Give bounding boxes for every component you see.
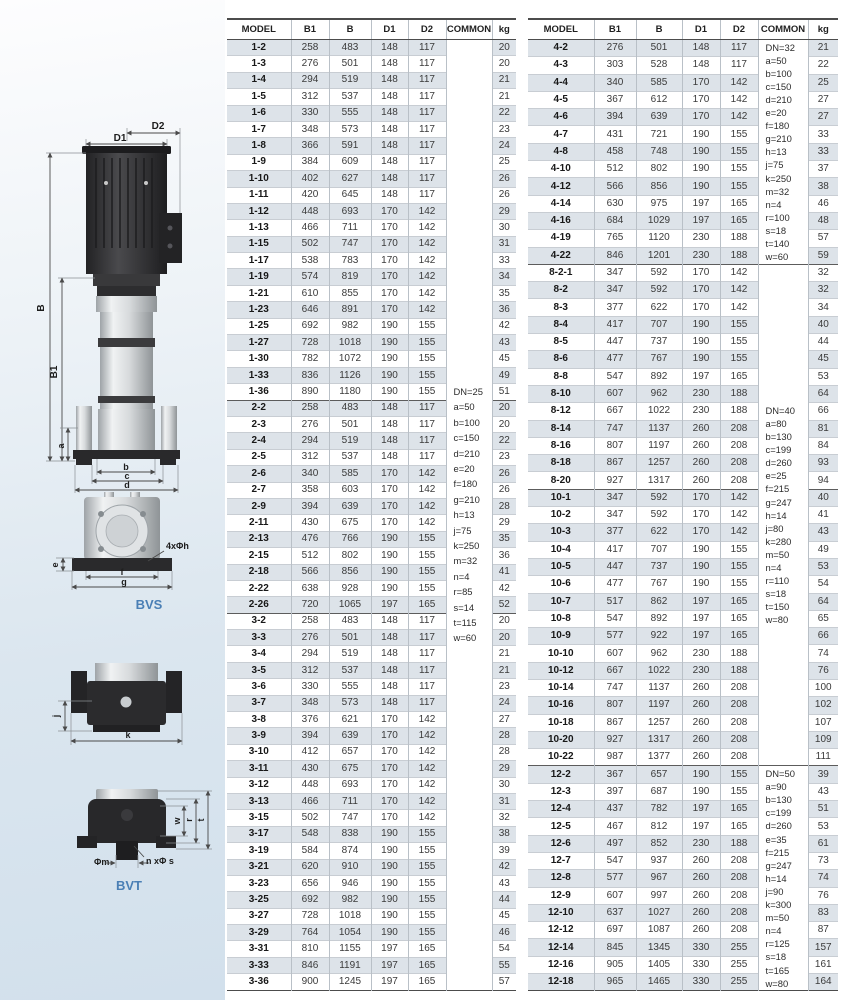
value-cell: 197 — [371, 597, 408, 613]
model-cell: 2-7 — [227, 482, 291, 498]
bvs-oval-flange-view: j k — [51, 663, 182, 745]
value-cell: 48 — [808, 212, 838, 229]
model-cell: 3-21 — [227, 859, 291, 875]
value-cell: 190 — [371, 318, 408, 334]
value-cell: 728 — [291, 335, 329, 351]
value-cell: 35 — [492, 285, 516, 301]
terminal-bolt — [168, 226, 173, 231]
value-cell: 73 — [808, 852, 838, 869]
value-cell: 117 — [720, 40, 758, 57]
value-cell: 26 — [492, 482, 516, 498]
value-cell: 29 — [492, 203, 516, 219]
value-cell: 43 — [808, 783, 838, 800]
value-cell: 394 — [594, 109, 636, 126]
value-cell: 142 — [408, 285, 446, 301]
value-cell: 737 — [636, 558, 682, 575]
value-cell: 142 — [408, 236, 446, 252]
value-cell: 1126 — [329, 367, 371, 383]
model-cell: 8-18 — [528, 455, 594, 472]
value-cell: 645 — [329, 187, 371, 203]
value-cell: 155 — [408, 875, 446, 891]
value-cell: 294 — [291, 72, 329, 88]
value-cell: 53 — [808, 368, 838, 385]
value-cell: 142 — [408, 220, 446, 236]
value-cell: 155 — [408, 908, 446, 924]
value-cell: 74 — [808, 645, 838, 662]
model-cell: 3-9 — [227, 728, 291, 744]
model-cell: 2-6 — [227, 466, 291, 482]
dim-label-a: a — [56, 443, 66, 449]
value-cell: 148 — [371, 433, 408, 449]
value-cell: 502 — [291, 236, 329, 252]
value-cell: 312 — [291, 449, 329, 465]
value-cell: 657 — [329, 744, 371, 760]
value-cell: 767 — [636, 351, 682, 368]
value-cell: 675 — [329, 515, 371, 531]
value-cell: 430 — [291, 515, 329, 531]
value-cell: 260 — [682, 887, 720, 904]
model-cell: 1-23 — [227, 302, 291, 318]
value-cell: 767 — [636, 576, 682, 593]
model-cell: 10-16 — [528, 697, 594, 714]
value-cell: 83 — [808, 904, 838, 921]
model-cell: 3-2 — [227, 613, 291, 629]
value-cell: 927 — [594, 472, 636, 489]
value-cell: 170 — [371, 285, 408, 301]
value-cell: 190 — [371, 859, 408, 875]
dim-label-b1: B1 — [49, 365, 60, 378]
value-cell: 437 — [594, 801, 636, 818]
value-cell: 987 — [594, 749, 636, 766]
value-cell: 230 — [682, 403, 720, 420]
value-cell: 117 — [408, 433, 446, 449]
model-cell: 1-11 — [227, 187, 291, 203]
value-cell: 922 — [636, 628, 682, 645]
model-cell: 10-3 — [528, 524, 594, 541]
value-cell: 170 — [371, 253, 408, 269]
model-cell: 10-4 — [528, 541, 594, 558]
value-cell: 466 — [291, 220, 329, 236]
spec-table-right: MODELB1BD1D2COMMONkg 4-2276501148117DN=3… — [528, 18, 838, 991]
value-cell: 412 — [291, 744, 329, 760]
column-band — [98, 396, 155, 403]
value-cell: 348 — [291, 695, 329, 711]
value-cell: 164 — [808, 974, 838, 991]
value-cell: 707 — [636, 316, 682, 333]
value-cell: 417 — [594, 541, 636, 558]
value-cell: 54 — [492, 941, 516, 957]
value-cell: 20 — [492, 630, 516, 646]
value-cell: 66 — [808, 628, 838, 645]
value-cell: 538 — [291, 253, 329, 269]
bvt-series-label: BVT — [116, 878, 142, 893]
value-cell: 94 — [808, 472, 838, 489]
value-cell: 905 — [594, 956, 636, 973]
value-cell: 148 — [682, 40, 720, 57]
value-cell: 394 — [291, 498, 329, 514]
value-cell: 845 — [594, 939, 636, 956]
value-cell: 607 — [594, 645, 636, 662]
value-cell: 142 — [408, 712, 446, 728]
value-cell: 330 — [682, 974, 720, 991]
value-cell: 84 — [808, 437, 838, 454]
value-cell: 900 — [291, 974, 329, 990]
value-cell: 501 — [329, 416, 371, 432]
model-cell: 10-6 — [528, 576, 594, 593]
model-cell: 2-11 — [227, 515, 291, 531]
value-cell: 294 — [291, 433, 329, 449]
dim-label-phi-m: Φm — [94, 857, 109, 867]
value-cell: 517 — [594, 593, 636, 610]
header-row: MODELB1BD1D2COMMONkg — [227, 19, 516, 40]
value-cell: 330 — [682, 956, 720, 973]
model-cell: 10-22 — [528, 749, 594, 766]
value-cell: 51 — [492, 384, 516, 400]
model-cell: 12-2 — [528, 766, 594, 783]
value-cell: 621 — [329, 712, 371, 728]
value-cell: 107 — [808, 714, 838, 731]
value-cell: 142 — [408, 466, 446, 482]
model-cell: 10-18 — [528, 714, 594, 731]
value-cell: 483 — [329, 40, 371, 56]
value-cell: 892 — [636, 368, 682, 385]
value-cell: 117 — [720, 57, 758, 74]
value-cell: 20 — [492, 40, 516, 56]
value-cell: 64 — [808, 593, 838, 610]
model-cell: 8-20 — [528, 472, 594, 489]
value-cell: 27 — [808, 109, 838, 126]
value-cell: 190 — [682, 143, 720, 160]
value-cell: 260 — [682, 455, 720, 472]
value-cell: 657 — [636, 766, 682, 783]
value-cell: 501 — [636, 40, 682, 57]
model-cell: 10-9 — [528, 628, 594, 645]
value-cell: 165 — [720, 593, 758, 610]
column-header-kg: kg — [808, 19, 838, 40]
value-cell: 188 — [720, 835, 758, 852]
value-cell: 1317 — [636, 472, 682, 489]
value-cell: 142 — [408, 253, 446, 269]
model-cell: 3-19 — [227, 843, 291, 859]
value-cell: 26 — [492, 187, 516, 203]
value-cell: 802 — [329, 548, 371, 564]
value-cell: 547 — [594, 368, 636, 385]
value-cell: 142 — [408, 810, 446, 826]
value-cell: 807 — [594, 437, 636, 454]
value-cell: 197 — [371, 957, 408, 973]
value-cell: 377 — [594, 524, 636, 541]
value-cell: 846 — [594, 247, 636, 264]
value-cell: 639 — [636, 109, 682, 126]
value-cell: 155 — [720, 558, 758, 575]
value-cell: 584 — [291, 843, 329, 859]
value-cell: 170 — [371, 302, 408, 318]
value-cell: 170 — [371, 515, 408, 531]
value-cell: 117 — [408, 646, 446, 662]
value-cell: 117 — [408, 89, 446, 105]
value-cell: 33 — [808, 143, 838, 160]
value-cell: 577 — [594, 628, 636, 645]
base-pot — [98, 409, 155, 451]
table-row-1-2: 1-2258483148117DN=25a=50b=100c=150d=210e… — [227, 40, 516, 56]
value-cell: 376 — [291, 712, 329, 728]
value-cell: 40 — [808, 316, 838, 333]
value-cell: 109 — [808, 731, 838, 748]
value-cell: 76 — [808, 662, 838, 679]
model-cell: 3-36 — [227, 974, 291, 990]
value-cell: 117 — [408, 171, 446, 187]
value-cell: 155 — [720, 351, 758, 368]
value-cell: 260 — [682, 679, 720, 696]
value-cell: 190 — [682, 126, 720, 143]
value-cell: 155 — [720, 316, 758, 333]
value-cell: 117 — [408, 72, 446, 88]
value-cell: 502 — [291, 810, 329, 826]
value-cell: 258 — [291, 400, 329, 416]
value-cell: 170 — [371, 482, 408, 498]
value-cell: 148 — [371, 187, 408, 203]
value-cell: 170 — [371, 744, 408, 760]
value-cell: 1054 — [329, 925, 371, 941]
value-cell: 23 — [492, 679, 516, 695]
model-cell: 1-15 — [227, 236, 291, 252]
model-cell: 10-7 — [528, 593, 594, 610]
value-cell: 170 — [682, 264, 720, 281]
model-cell: 4-22 — [528, 247, 594, 264]
value-cell: 142 — [408, 482, 446, 498]
value-cell: 39 — [808, 766, 838, 783]
value-cell: 340 — [291, 466, 329, 482]
value-cell: 37 — [808, 161, 838, 178]
value-cell: 43 — [808, 524, 838, 541]
value-cell: 26 — [492, 466, 516, 482]
model-cell: 8-2 — [528, 282, 594, 299]
value-cell: 117 — [408, 400, 446, 416]
value-cell: 21 — [492, 662, 516, 678]
value-cell: 155 — [408, 564, 446, 580]
value-cell: 102 — [808, 697, 838, 714]
value-cell: 519 — [329, 72, 371, 88]
model-cell: 10-5 — [528, 558, 594, 575]
value-cell: 188 — [720, 247, 758, 264]
value-cell: 155 — [408, 925, 446, 941]
value-cell: 836 — [291, 367, 329, 383]
motor-bolt — [104, 181, 108, 185]
model-cell: 3-12 — [227, 777, 291, 793]
value-cell: 447 — [594, 334, 636, 351]
value-cell: 155 — [408, 892, 446, 908]
foot — [76, 459, 92, 465]
value-cell: 330 — [291, 679, 329, 695]
value-cell: 65 — [808, 610, 838, 627]
value-cell: 855 — [329, 285, 371, 301]
value-cell: 117 — [408, 416, 446, 432]
dim-label-d1: D1 — [114, 133, 127, 144]
value-cell: 155 — [720, 576, 758, 593]
value-cell: 170 — [371, 712, 408, 728]
model-cell: 3-25 — [227, 892, 291, 908]
value-cell: 982 — [329, 318, 371, 334]
value-cell: 577 — [594, 870, 636, 887]
value-cell: 93 — [808, 455, 838, 472]
value-cell: 431 — [594, 126, 636, 143]
column-header-b: B — [636, 19, 682, 40]
value-cell: 537 — [329, 449, 371, 465]
value-cell: 397 — [594, 783, 636, 800]
value-cell: 41 — [808, 507, 838, 524]
value-cell: 720 — [291, 597, 329, 613]
value-cell: 117 — [408, 138, 446, 154]
model-cell: 10-10 — [528, 645, 594, 662]
value-cell: 40 — [808, 489, 838, 506]
model-cell: 1-5 — [227, 89, 291, 105]
value-cell: 501 — [329, 56, 371, 72]
value-cell: 27 — [492, 712, 516, 728]
pump-column — [100, 312, 153, 409]
value-cell: 170 — [371, 498, 408, 514]
value-cell: 528 — [636, 57, 682, 74]
column-header-kg: kg — [492, 19, 516, 40]
value-cell: 53 — [808, 558, 838, 575]
value-cell: 230 — [682, 835, 720, 852]
value-cell: 692 — [291, 892, 329, 908]
column-header-common: COMMON — [446, 19, 492, 40]
value-cell: 53 — [808, 818, 838, 835]
value-cell: 1317 — [636, 731, 682, 748]
bvs-flange-view: e 4xΦh f g BVS — [50, 492, 189, 612]
column-header-b1: B1 — [291, 19, 329, 40]
model-cell: 8-16 — [528, 437, 594, 454]
model-cell: 12-16 — [528, 956, 594, 973]
value-cell: 1022 — [636, 403, 682, 420]
model-cell: 1-12 — [227, 203, 291, 219]
model-cell: 1-4 — [227, 72, 291, 88]
value-cell: 260 — [682, 904, 720, 921]
value-cell: 585 — [636, 74, 682, 91]
value-cell: 810 — [291, 941, 329, 957]
model-cell: 3-8 — [227, 712, 291, 728]
value-cell: 197 — [682, 368, 720, 385]
value-cell: 148 — [371, 138, 408, 154]
model-cell: 2-13 — [227, 531, 291, 547]
value-cell: 28 — [492, 744, 516, 760]
value-cell: 22 — [492, 433, 516, 449]
model-cell: 8-10 — [528, 385, 594, 402]
value-cell: 142 — [408, 744, 446, 760]
value-cell: 612 — [636, 91, 682, 108]
value-cell: 1180 — [329, 384, 371, 400]
model-cell: 4-12 — [528, 178, 594, 195]
value-cell: 142 — [408, 498, 446, 514]
value-cell: 591 — [329, 138, 371, 154]
model-cell: 4-6 — [528, 109, 594, 126]
value-cell: 148 — [682, 57, 720, 74]
value-cell: 802 — [636, 161, 682, 178]
value-cell: 170 — [371, 236, 408, 252]
value-cell: 747 — [329, 236, 371, 252]
value-cell: 155 — [408, 859, 446, 875]
value-cell: 607 — [594, 385, 636, 402]
value-cell: 466 — [291, 793, 329, 809]
model-cell: 4-4 — [528, 74, 594, 91]
model-cell: 1-27 — [227, 335, 291, 351]
value-cell: 148 — [371, 121, 408, 137]
value-cell: 148 — [371, 679, 408, 695]
value-cell: 142 — [408, 793, 446, 809]
model-cell: 12-10 — [528, 904, 594, 921]
value-cell: 170 — [682, 524, 720, 541]
model-cell: 4-10 — [528, 161, 594, 178]
value-cell: 230 — [682, 385, 720, 402]
value-cell: 38 — [808, 178, 838, 195]
value-cell: 1257 — [636, 714, 682, 731]
model-cell: 2-22 — [227, 580, 291, 596]
value-cell: 190 — [371, 367, 408, 383]
value-cell: 42 — [492, 318, 516, 334]
value-cell: 55 — [492, 957, 516, 973]
value-cell: 34 — [492, 269, 516, 285]
value-cell: 208 — [720, 697, 758, 714]
model-cell: 4-14 — [528, 195, 594, 212]
value-cell: 592 — [636, 489, 682, 506]
suction-flange — [76, 406, 92, 452]
value-cell: 255 — [720, 956, 758, 973]
value-cell: 26 — [492, 171, 516, 187]
value-cell: 190 — [371, 384, 408, 400]
value-cell: 190 — [371, 925, 408, 941]
value-cell: 1065 — [329, 597, 371, 613]
value-cell: 170 — [682, 299, 720, 316]
value-cell: 188 — [720, 385, 758, 402]
value-cell: 165 — [408, 957, 446, 973]
plug — [121, 697, 132, 708]
model-cell: 8-5 — [528, 334, 594, 351]
value-cell: 35 — [492, 531, 516, 547]
value-cell: 197 — [682, 801, 720, 818]
model-cell: 12-8 — [528, 870, 594, 887]
model-cell: 1-8 — [227, 138, 291, 154]
value-cell: 24 — [492, 138, 516, 154]
value-cell: 36 — [492, 302, 516, 318]
value-cell: 303 — [594, 57, 636, 74]
pump-head — [96, 296, 157, 312]
model-cell: 12-7 — [528, 852, 594, 869]
value-cell: 377 — [594, 299, 636, 316]
spec-table-left: MODELB1BD1D2COMMONkg 1-2258483148117DN=2… — [227, 18, 516, 991]
value-cell: 170 — [682, 91, 720, 108]
model-cell: 12-12 — [528, 922, 594, 939]
model-cell: 10-14 — [528, 679, 594, 696]
value-cell: 117 — [408, 187, 446, 203]
value-cell: 501 — [329, 630, 371, 646]
discharge-flange — [161, 406, 177, 452]
value-cell: 975 — [636, 195, 682, 212]
column-band — [98, 338, 155, 347]
value-cell: 190 — [682, 766, 720, 783]
dim-label-g: g — [121, 577, 127, 587]
model-cell: 2-3 — [227, 416, 291, 432]
value-cell: 20 — [492, 56, 516, 72]
value-cell: 1257 — [636, 455, 682, 472]
value-cell: 170 — [371, 269, 408, 285]
value-cell: 170 — [682, 489, 720, 506]
value-cell: 148 — [371, 154, 408, 170]
value-cell: 330 — [291, 105, 329, 121]
value-cell: 255 — [720, 974, 758, 991]
value-cell: 230 — [682, 247, 720, 264]
value-cell: 639 — [329, 728, 371, 744]
value-cell: 467 — [594, 818, 636, 835]
